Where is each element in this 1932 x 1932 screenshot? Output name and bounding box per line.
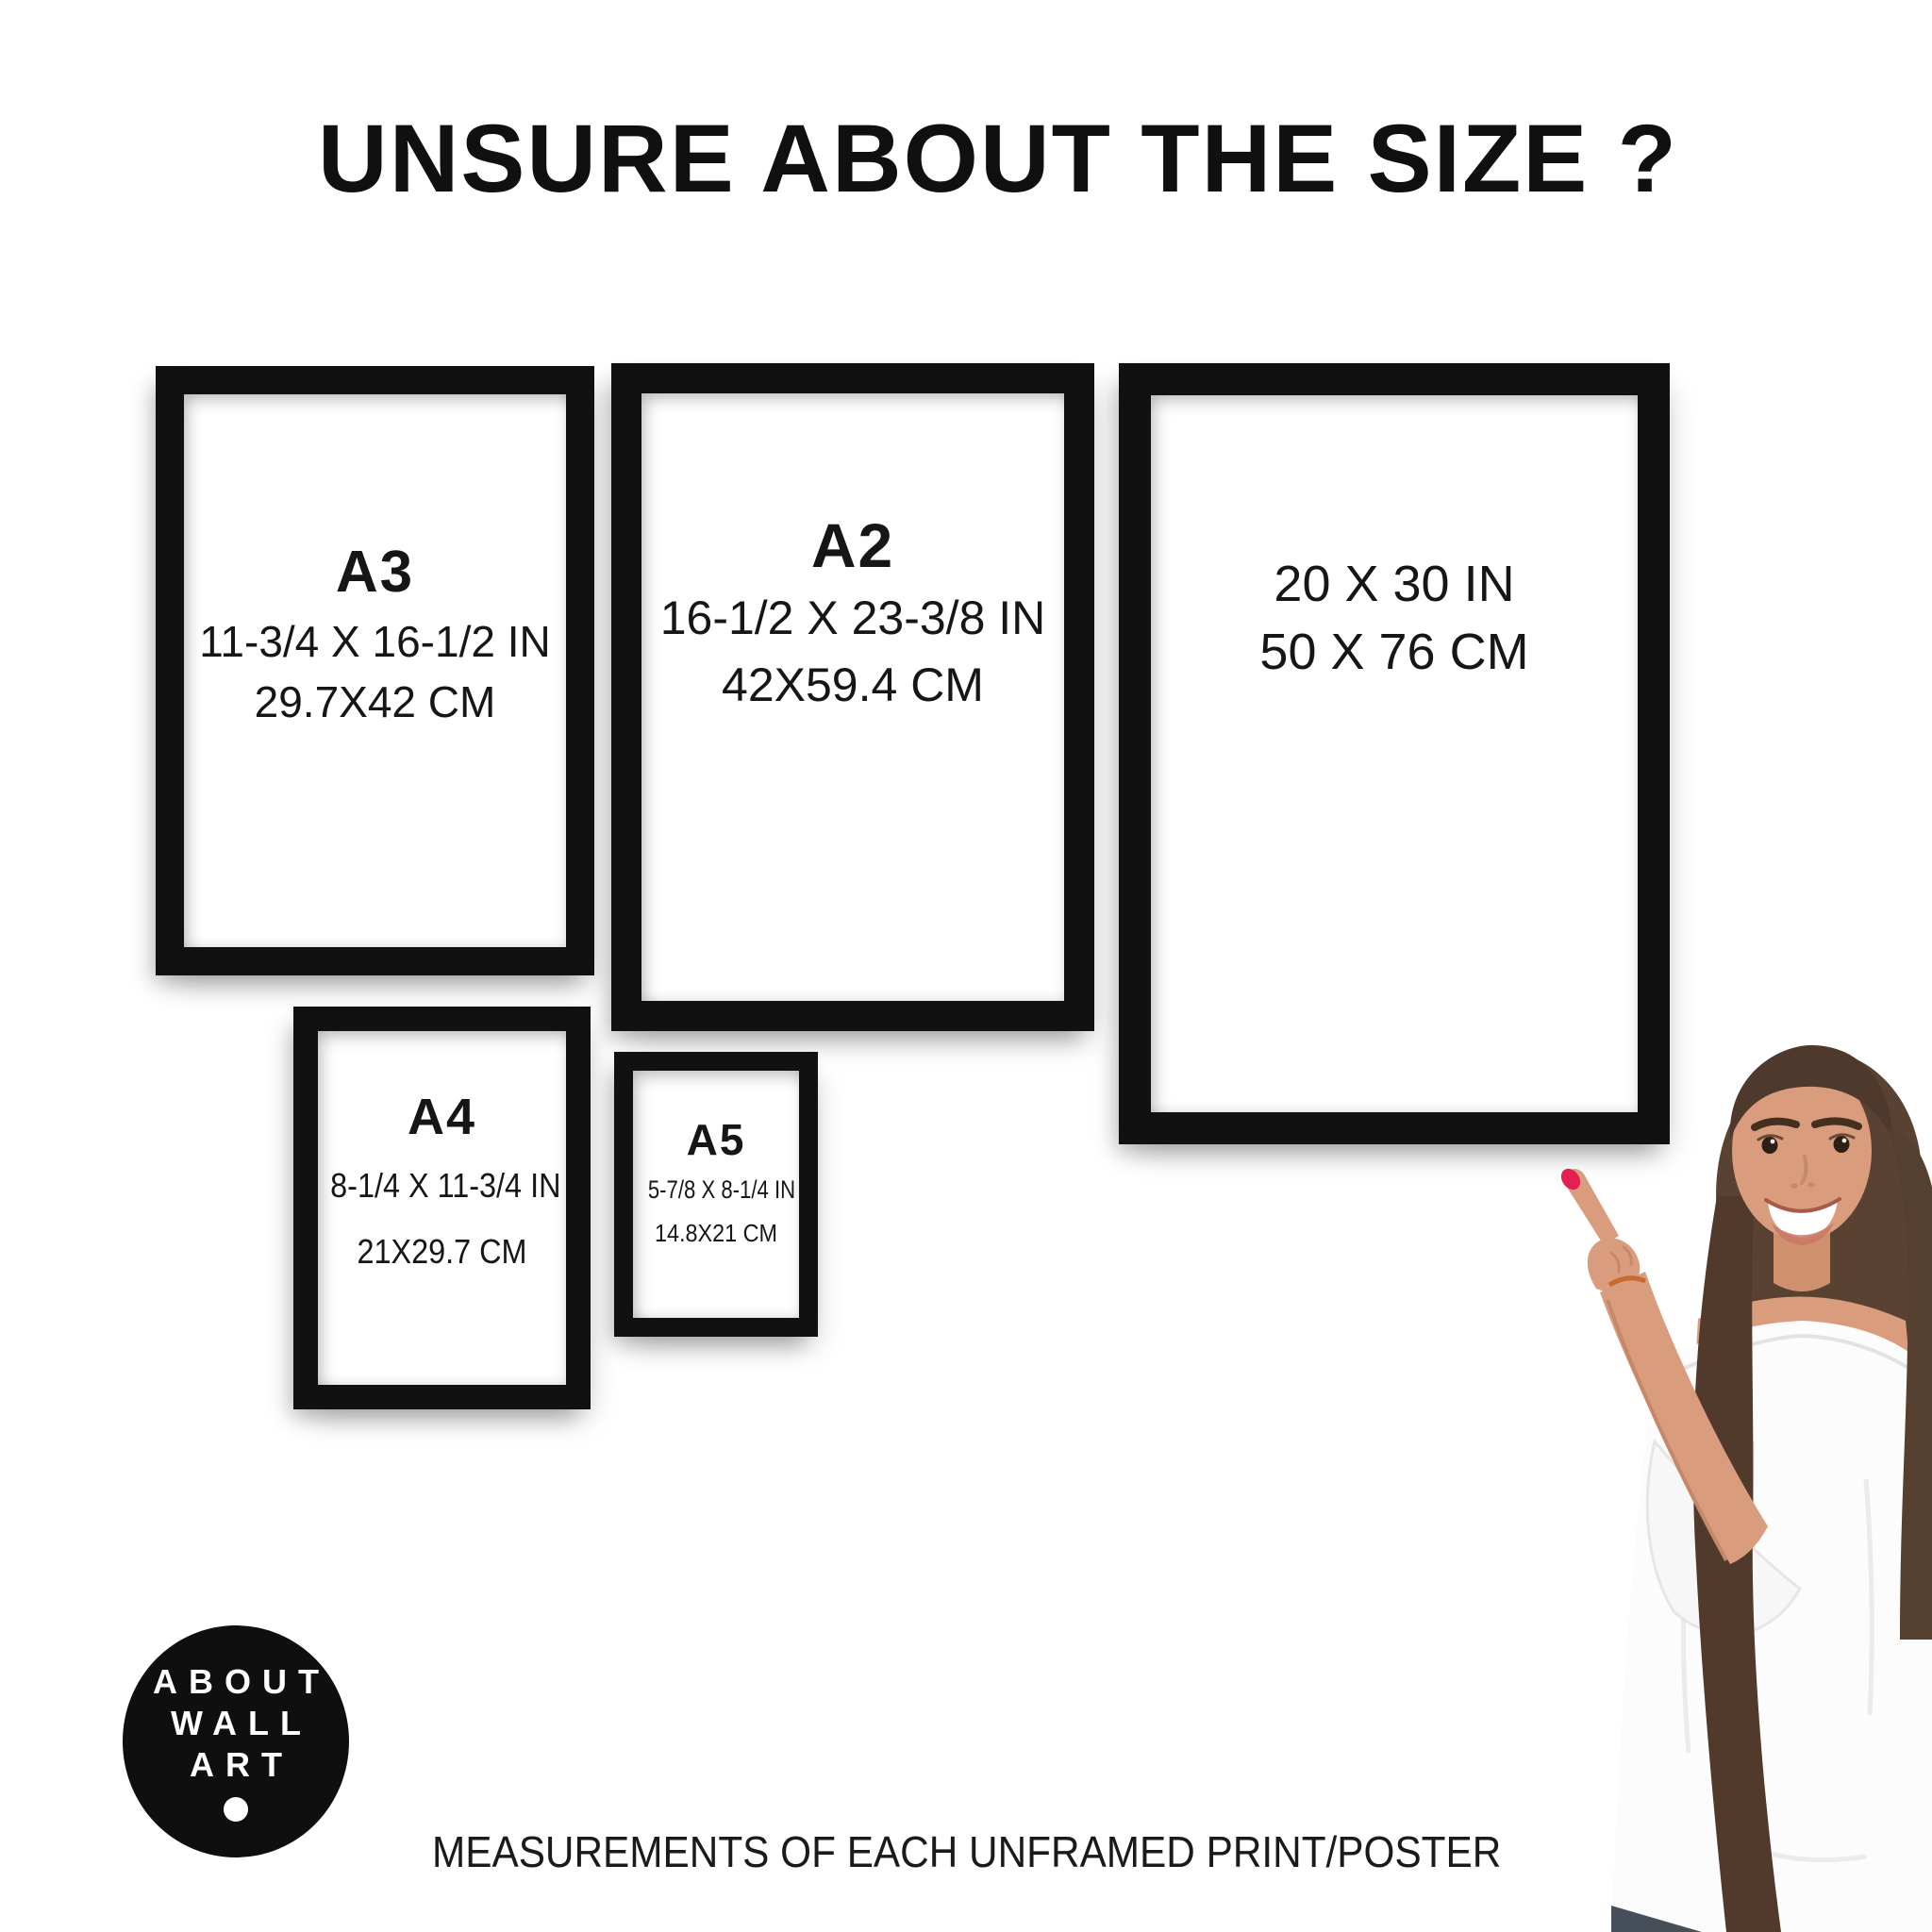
- size-name: A2: [641, 514, 1064, 576]
- size-frame-20x30: 20 X 30 IN 50 X 76 CM: [1119, 363, 1670, 1144]
- size-guide-poster: UNSURE ABOUT THE SIZE ? A3 11-3/4 X 16-1…: [0, 0, 1932, 1932]
- brand-logo-dot: [224, 1797, 248, 1822]
- eye-glint: [1842, 1139, 1847, 1143]
- frame-label: A4 8-1/4 X 11-3/4 IN 21X29.7 CM: [318, 1091, 566, 1273]
- size-cm: 21X29.7 CM: [330, 1231, 554, 1273]
- nostril: [1807, 1183, 1815, 1188]
- brand-logo-line1: ABOUT: [142, 1661, 330, 1703]
- frame-label: A2 16-1/2 X 23-3/8 IN 42X59.4 CM: [641, 514, 1064, 714]
- size-name: A4: [318, 1091, 566, 1142]
- pointing-hand: [1588, 1238, 1640, 1296]
- size-cm: 42X59.4 CM: [641, 657, 1064, 714]
- page-title: UNSURE ABOUT THE SIZE ?: [318, 104, 1678, 214]
- size-inches: 8-1/4 X 11-3/4 IN: [330, 1165, 554, 1207]
- size-name: A5: [633, 1118, 799, 1161]
- brand-logo: ABOUT WALL ART: [123, 1625, 349, 1857]
- size-frame-a5: A5 5-7/8 X 8-1/4 IN 14.8X21 CM: [614, 1052, 818, 1337]
- right-eye: [1834, 1136, 1850, 1153]
- size-inches: 5-7/8 X 8-1/4 IN: [648, 1174, 784, 1206]
- size-inches: 11-3/4 X 16-1/2 IN: [184, 615, 566, 668]
- left-eye: [1762, 1137, 1778, 1154]
- woman-pointing-photo: [1470, 1036, 1932, 1932]
- size-frame-a3: A3 11-3/4 X 16-1/2 IN 29.7X42 CM: [156, 366, 594, 975]
- size-frame-a2: A2 16-1/2 X 23-3/8 IN 42X59.4 CM: [611, 363, 1094, 1031]
- brand-logo-line2: WALL: [159, 1703, 312, 1744]
- nostril: [1790, 1184, 1798, 1189]
- frame-label: A3 11-3/4 X 16-1/2 IN 29.7X42 CM: [184, 543, 566, 728]
- size-cm: 14.8X21 CM: [641, 1219, 791, 1249]
- eye-glint: [1771, 1140, 1775, 1144]
- size-inches: 16-1/2 X 23-3/8 IN: [641, 590, 1064, 647]
- frame-label: 20 X 30 IN 50 X 76 CM: [1151, 554, 1638, 684]
- size-cm: 50 X 76 CM: [1151, 622, 1638, 684]
- footer-caption: MEASUREMENTS OF EACH UNFRAMED PRINT/POST…: [432, 1826, 1501, 1877]
- size-frame-a4: A4 8-1/4 X 11-3/4 IN 21X29.7 CM: [293, 1007, 591, 1409]
- size-cm: 29.7X42 CM: [184, 675, 566, 728]
- size-name: A3: [184, 543, 566, 602]
- size-inches: 20 X 30 IN: [1151, 554, 1638, 616]
- frame-label: A5 5-7/8 X 8-1/4 IN 14.8X21 CM: [633, 1118, 799, 1249]
- brand-logo-line3: ART: [178, 1744, 293, 1786]
